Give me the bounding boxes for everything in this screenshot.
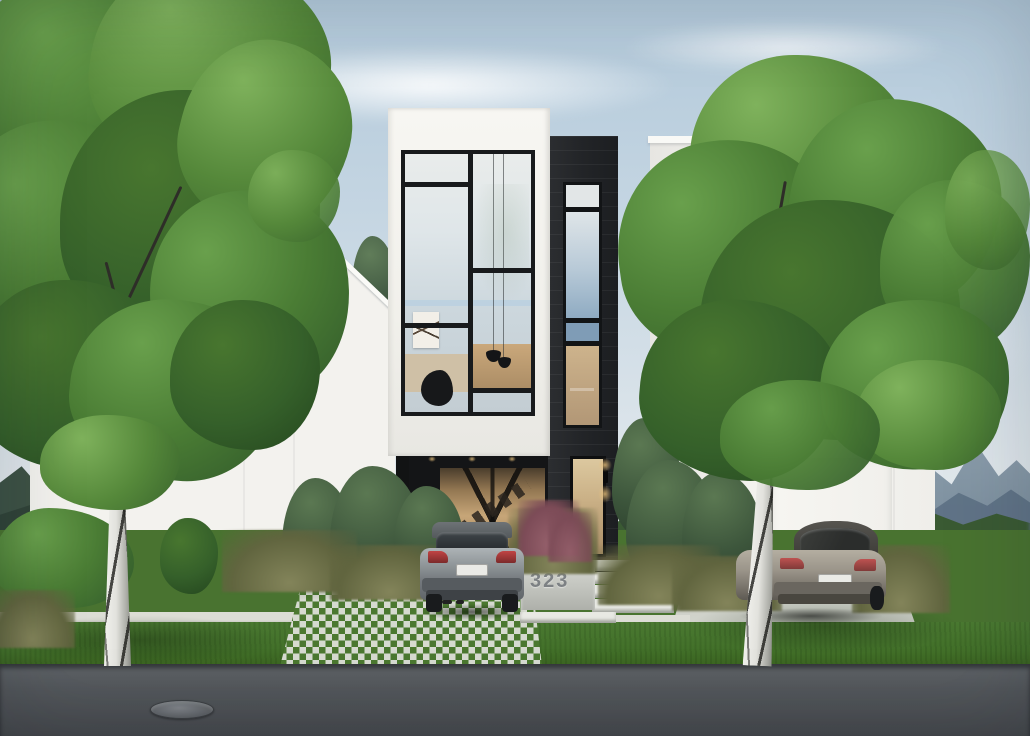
tower-window-pane (566, 212, 599, 318)
car-wheel (426, 594, 442, 612)
sconce-uplight (598, 458, 612, 472)
asphalt-road (0, 664, 1030, 736)
sconce-downlight (598, 485, 612, 503)
architectural-rendering-scene: 323 (0, 0, 1030, 736)
car-exhaust (456, 600, 464, 604)
car-valance (778, 594, 874, 604)
ornamental-grass (0, 590, 75, 648)
foliage-blob (40, 415, 180, 510)
car-taillight (428, 551, 448, 563)
entry-step (520, 612, 616, 623)
wall-art (413, 312, 439, 348)
soffit-downlight (508, 456, 516, 462)
shrub (160, 518, 218, 594)
foliage-blob (170, 300, 320, 450)
interior-shelf-reflection (570, 388, 594, 391)
car-wheel (502, 594, 518, 612)
car-wheel (870, 586, 884, 610)
red-plume-grass (548, 512, 592, 562)
window-mullion (405, 323, 468, 328)
tower-window-pane (566, 323, 599, 341)
manhole-cover (150, 700, 214, 719)
window-mullion (405, 182, 468, 187)
window-mullion (473, 268, 531, 273)
car-taillight (854, 559, 876, 571)
tower-window-pane (566, 346, 599, 425)
foliage-blob (720, 380, 880, 490)
window-mullion (473, 388, 531, 393)
car-license-plate (456, 564, 488, 576)
foliage-blob (856, 360, 1001, 470)
mondrian-window (401, 150, 535, 416)
foliage-blob (945, 150, 1030, 270)
tree-reflection (471, 184, 529, 304)
window-mullion (468, 154, 473, 412)
soffit-downlight (428, 456, 436, 462)
car-taillight (496, 551, 516, 563)
tower-window-pane (566, 185, 599, 207)
soffit-downlight (468, 456, 476, 462)
foliage-blob (248, 150, 340, 242)
car-exhaust (442, 600, 452, 604)
gray-hatchback (420, 520, 524, 620)
car-taillight (780, 558, 804, 569)
lounge-chair (421, 370, 453, 406)
